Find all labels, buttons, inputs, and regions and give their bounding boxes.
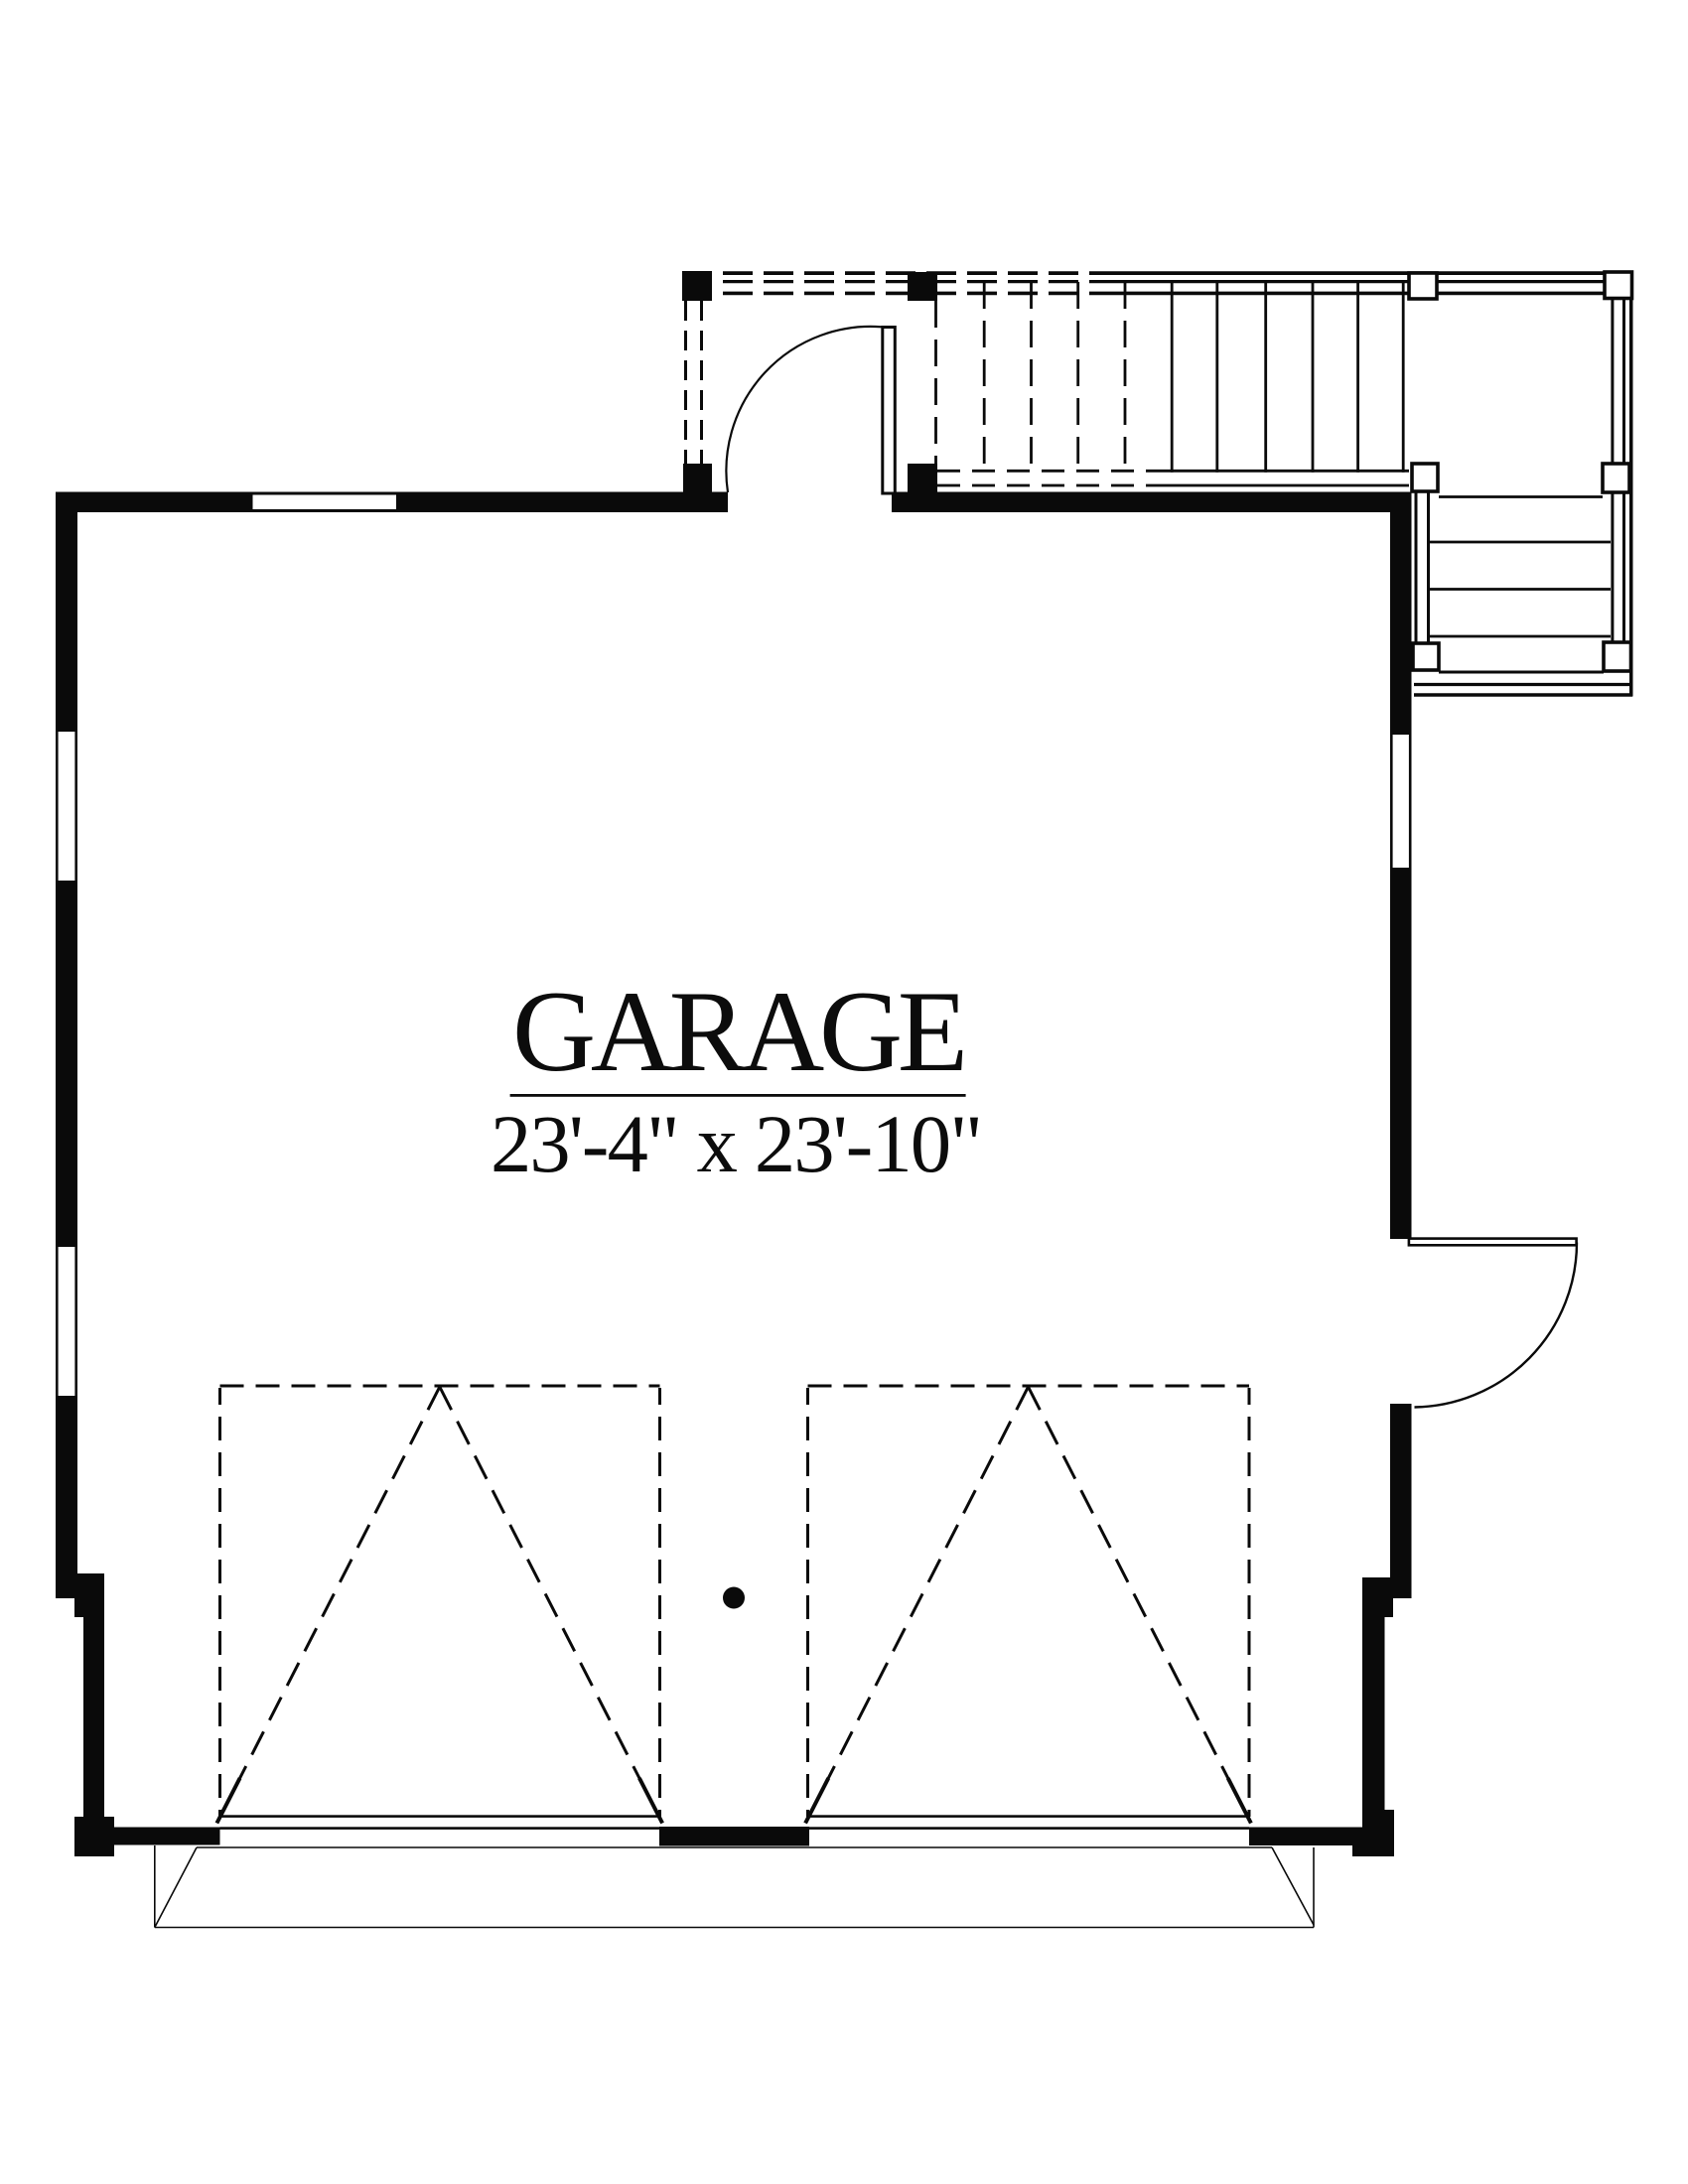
svg-text:GARAGE: GARAGE — [512, 968, 968, 1096]
svg-text:23'-4" x 23'-10": 23'-4" x 23'-10" — [491, 1098, 983, 1189]
